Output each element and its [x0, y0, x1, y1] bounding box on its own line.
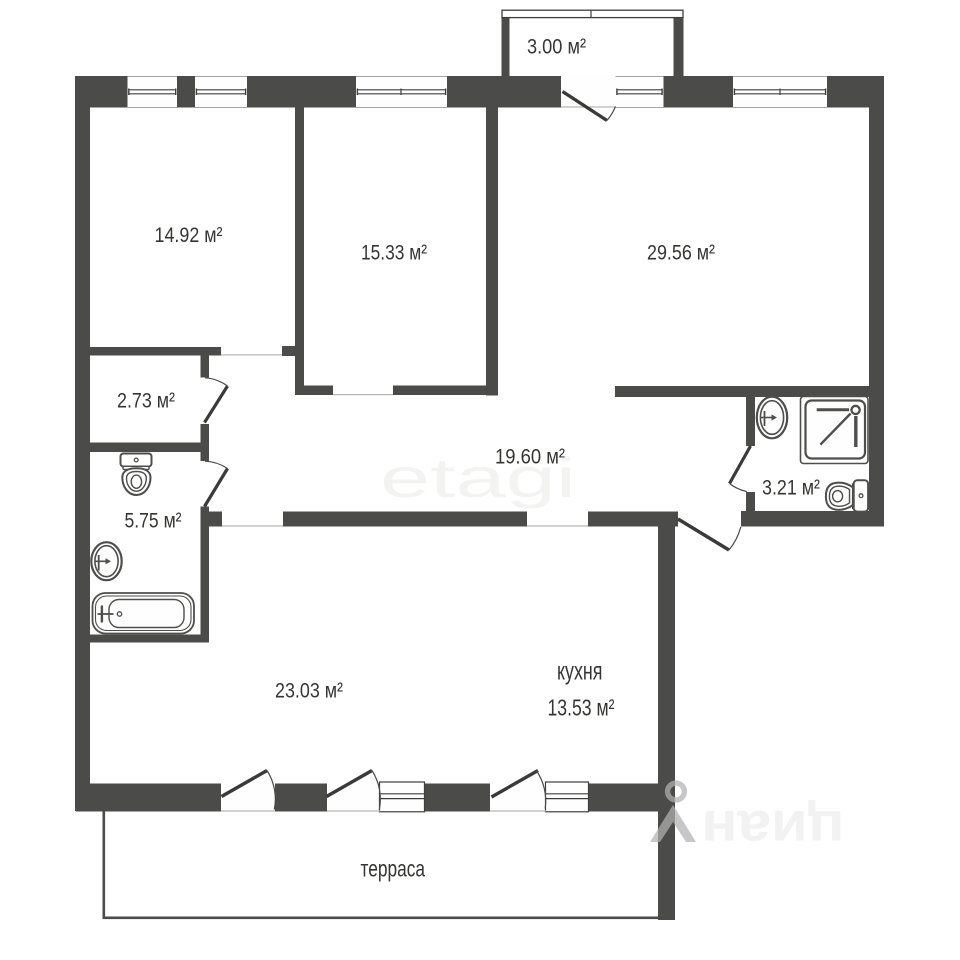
svg-text:13.53 м²: 13.53 м² — [548, 695, 615, 721]
svg-text:23.03 м²: 23.03 м² — [275, 680, 343, 703]
svg-text:терраса: терраса — [361, 856, 426, 882]
svg-text:5.75 м²: 5.75 м² — [125, 510, 182, 533]
svg-text:2.73 м²: 2.73 м² — [117, 390, 175, 413]
svg-text:кухня: кухня — [557, 658, 603, 686]
svg-text:циан: циан — [702, 799, 845, 862]
svg-text:3.00 м²: 3.00 м² — [527, 36, 586, 59]
svg-text:14.92 м²: 14.92 м² — [155, 224, 223, 247]
svg-text:15.33 м²: 15.33 м² — [361, 242, 427, 265]
svg-text:29.56 м²: 29.56 м² — [647, 242, 715, 265]
svg-text:etagi: etagi — [380, 446, 576, 509]
svg-text:3.21 м²: 3.21 м² — [762, 477, 820, 500]
